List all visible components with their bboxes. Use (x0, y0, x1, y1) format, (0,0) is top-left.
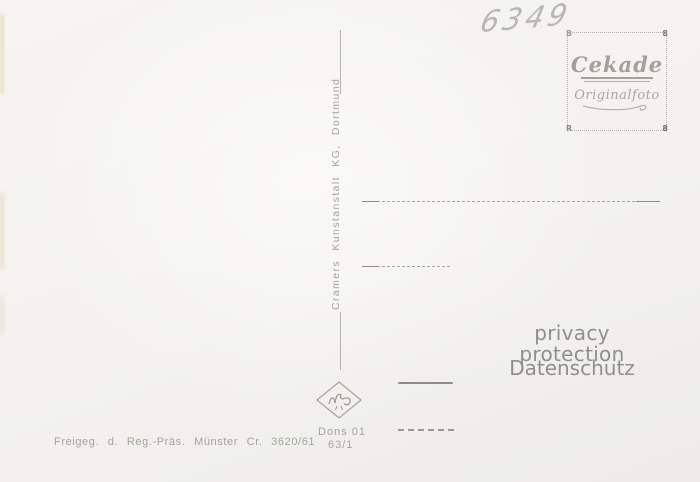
bottom-dashed-line (398, 429, 454, 431)
order-number: Dons 01 63/1 (318, 426, 366, 451)
scan-edge-smudge (0, 14, 4, 94)
stamp-subtitle-flourish-icon (581, 103, 653, 112)
stamp-box: B 8 R 8 Cekade Originalfoto (567, 32, 667, 131)
postcard-back: 6349 B 8 R 8 Cekade Originalfoto Cramers… (0, 0, 700, 482)
address-line-2 (362, 266, 450, 267)
publisher-credit: Cramers Kunstanstalt KG, Dortmund (330, 96, 348, 310)
stamp-corner-mark-top-left: B (566, 30, 572, 38)
privacy-watermark: privacy protection Datenschutz (494, 323, 650, 379)
address-line-1 (362, 201, 660, 202)
order-number-line2: 63/1 (328, 439, 366, 451)
stamp-corner-mark-bottom-right: 8 (662, 125, 668, 133)
stamp-corner-mark-top-right: 8 (662, 30, 668, 38)
stamp-brand-underline (581, 77, 653, 79)
publisher-diamond-logo-icon (316, 381, 362, 419)
stamp-brand-logo: Cekade (568, 54, 666, 76)
stamp-subtitle: Originalfoto (568, 88, 666, 103)
scan-edge-smudge (0, 192, 4, 270)
handwritten-number: 6349 (477, 0, 575, 39)
stamp-brand-underline-thin (584, 81, 650, 82)
order-number-line1: Dons 01 (318, 426, 366, 438)
approval-text: Freigeg. d. Reg.-Präs. Münster Cr. 3620/… (54, 436, 315, 448)
stamp-corner-mark-bottom-left: R (566, 125, 572, 133)
privacy-watermark-line2: Datenschutz (494, 358, 650, 379)
stamp-area-solid-line (398, 382, 453, 384)
scan-edge-smudge (0, 296, 4, 336)
publisher-divider-line-bottom (340, 312, 341, 370)
